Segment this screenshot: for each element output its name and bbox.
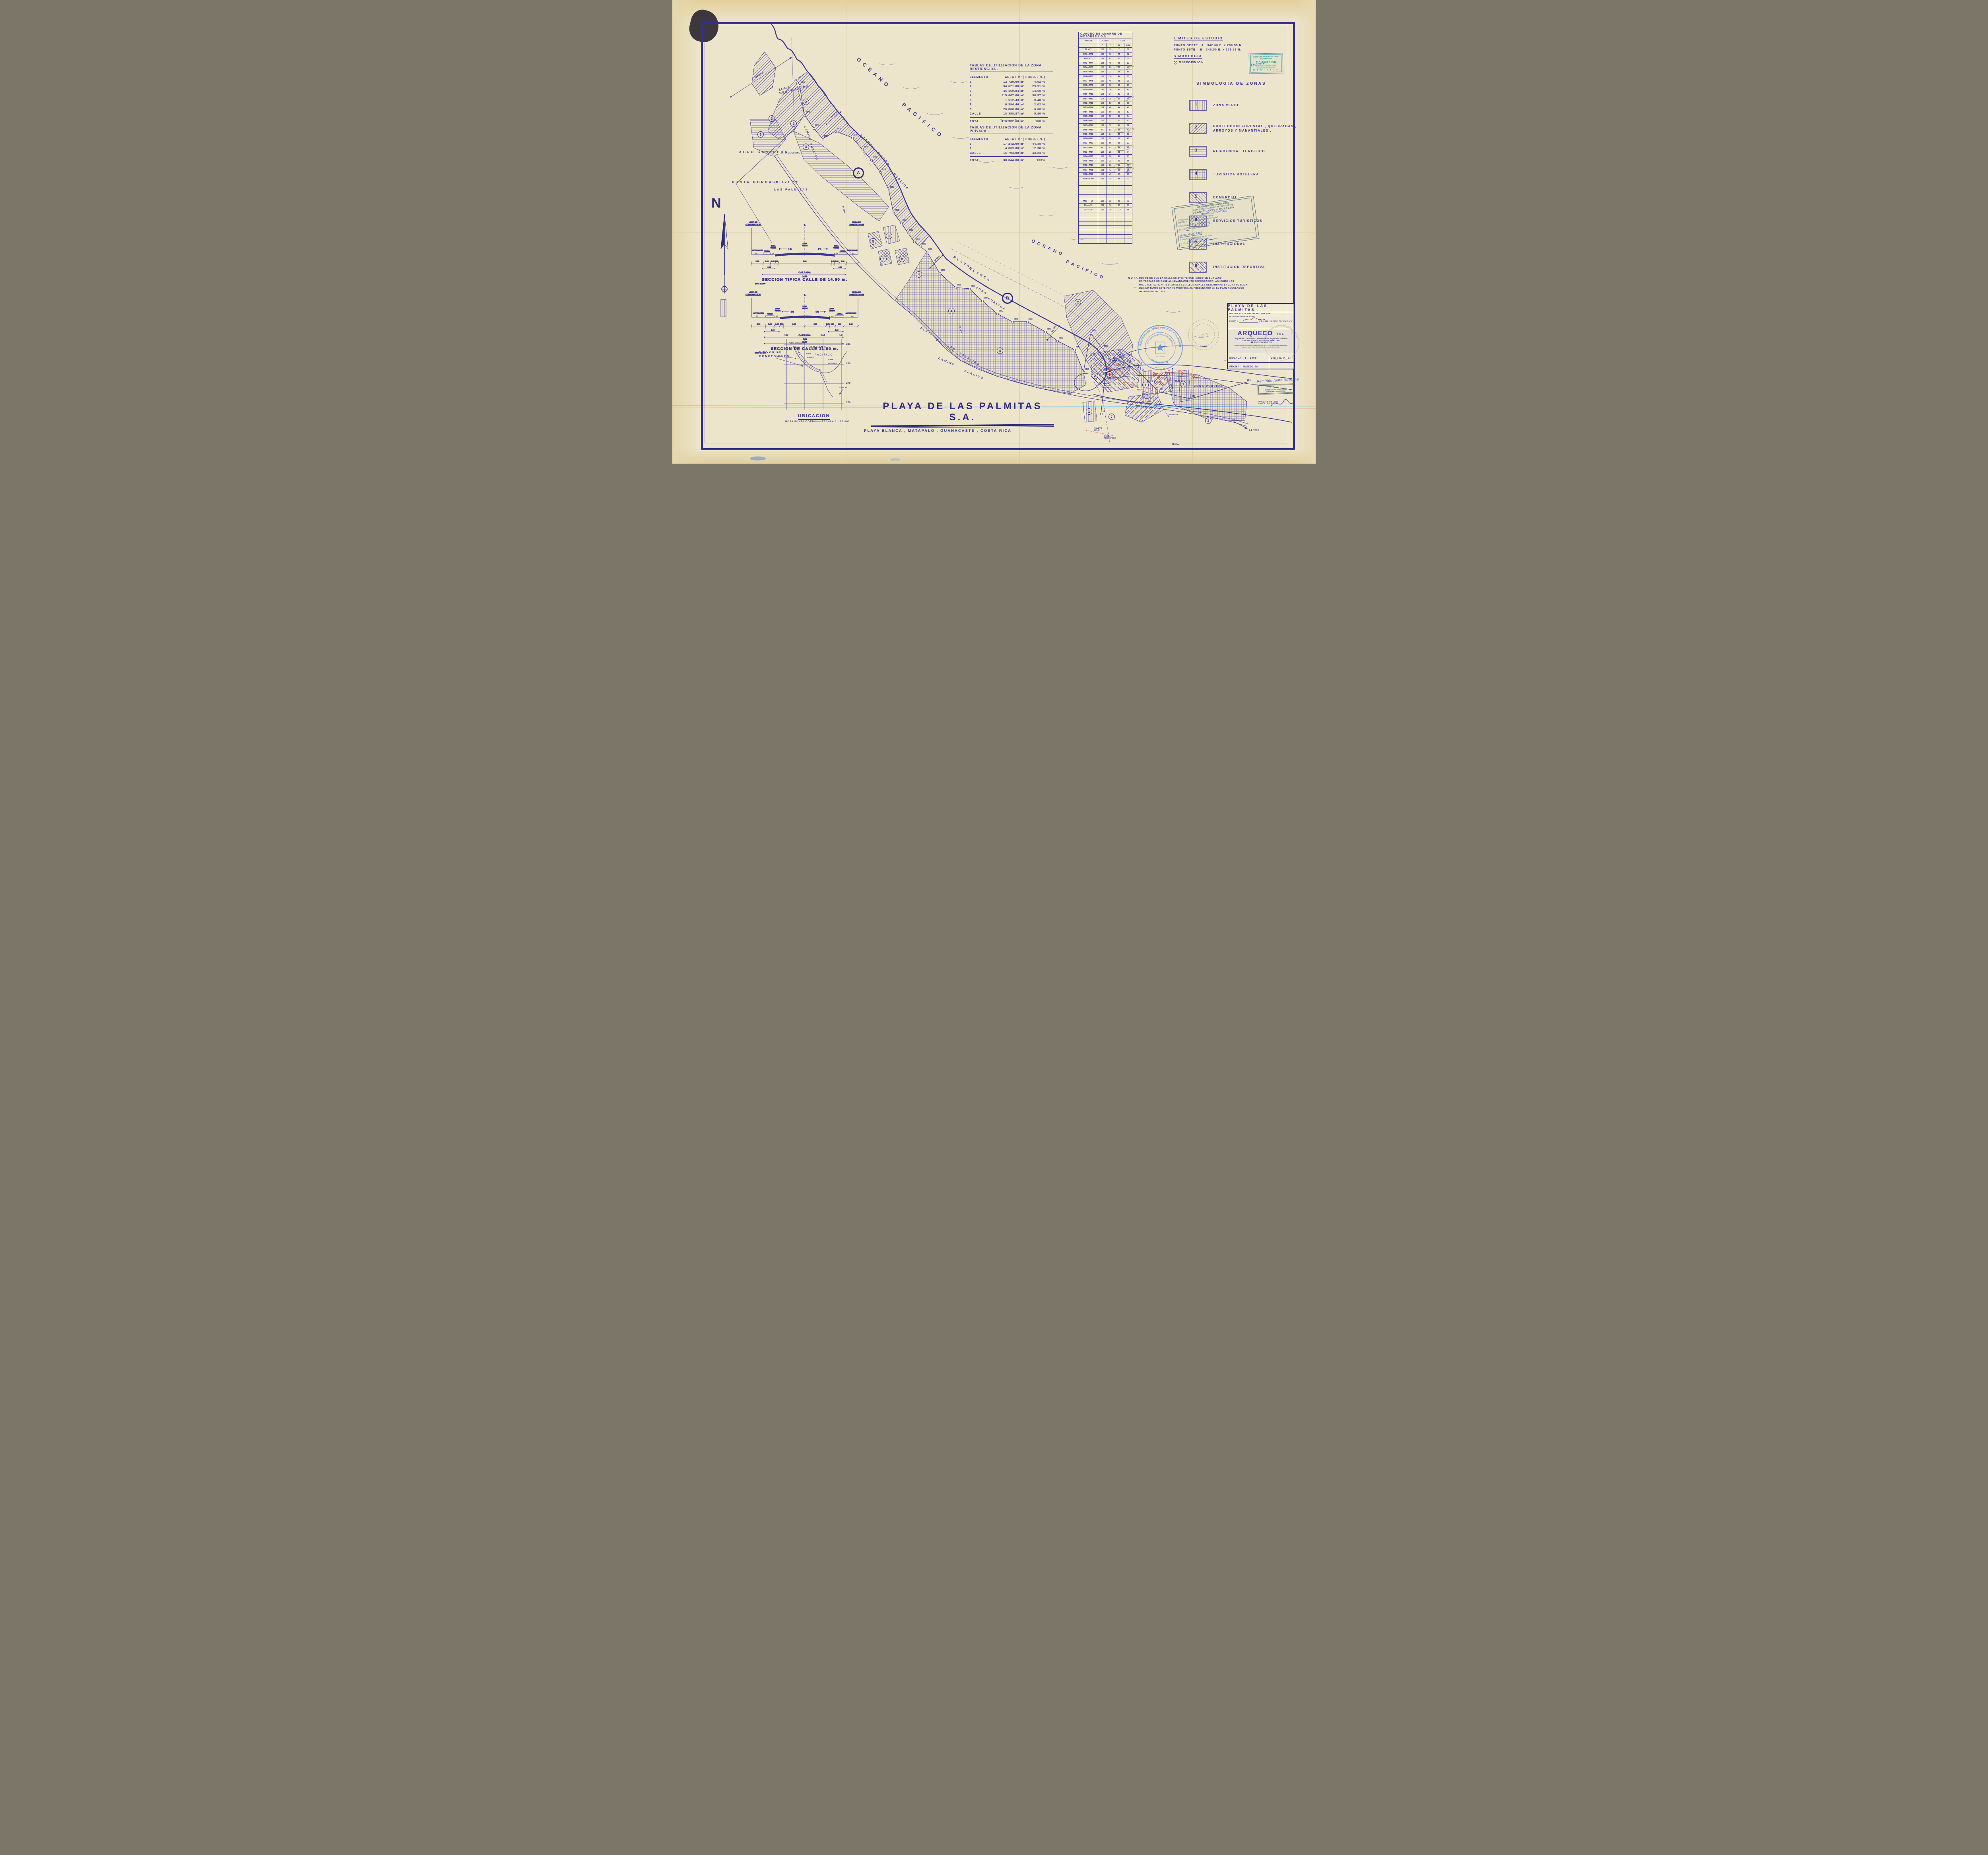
inset-shore [820, 351, 847, 373]
planeamiento-round-stamp: DIRECCION DE PLANEAMIENTO [1262, 323, 1301, 363]
inset-fincas-arrow [777, 358, 804, 366]
fincas-en-concesiones-label: FINCAS EN CONCESIONES [759, 350, 790, 358]
recibido-stamp: INSTITUTO COSTARRICENSE DE TURISMO 2 0 A… [1249, 53, 1283, 74]
inset-beach-band [793, 346, 820, 372]
ubicacion-title: UBICACION [798, 412, 830, 419]
pencil-note: 38.38 [1128, 168, 1134, 170]
svg-text:I. C. T.: I. C. T. [1198, 332, 1209, 338]
pencil-note: 56.20 [1128, 163, 1134, 166]
svg-text:JULIO 1944: JULIO 1944 [1155, 355, 1165, 357]
main-subtitle: PLAYA BLANCA , MATAPALO , GUANACASTE , C… [864, 429, 1011, 433]
plan-sheet: OCEANOPACIFICOOCEANOPACIFICOZONA RESTRIN… [672, 0, 1316, 464]
pencil-note: 56.64 [1128, 66, 1134, 68]
svg-text:INSTITUTO GEOGRAFICO NACIONAL: INSTITUTO GEOGRAFICO NACIONAL [1147, 334, 1174, 345]
ign-round-stamp: MINISTERIO DE OBRAS PUBLICAS Y TRANSPORT… [1136, 323, 1185, 372]
main-title: PLAYA DE LAS PALMITAS S.A. [871, 401, 1054, 427]
ict-box-signature [1270, 399, 1294, 410]
pencil-note: 49.91 [1128, 128, 1134, 130]
ict-box-stamp: I. C. T. COMISION INTERNA ZONA MARITIMO … [1258, 383, 1295, 394]
svg-text:COSTA RICA: COSTA RICA [1150, 359, 1165, 364]
inset-river [820, 373, 833, 397]
ict-round-stamp: I. C. T. [1187, 318, 1220, 352]
ubicacion-subtitle: HOJA PUNTA GORDA——ESCALA 1 : 50.000 [785, 421, 850, 423]
pencil-note: 47.40 [1128, 146, 1134, 148]
svg-text:DIRECCION DE PLANEAMIENTO: DIRECCION DE PLANEAMIENTO [1264, 325, 1299, 341]
pencil-note: 46.93 [1128, 97, 1134, 99]
firma-signature [1242, 317, 1266, 323]
title-block-project: PLAYA DE LAS PALMITAS [1228, 304, 1294, 312]
title-block-date-row: FECHA : MARZO 98 [1228, 363, 1294, 371]
